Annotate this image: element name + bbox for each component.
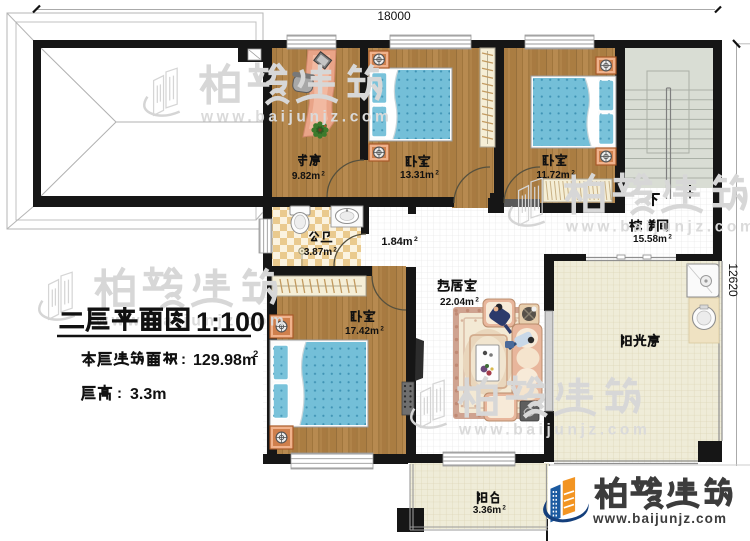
svg-text:2: 2: [253, 349, 258, 360]
svg-text:3.87m: 3.87m: [304, 247, 332, 258]
svg-text:2: 2: [380, 326, 384, 333]
svg-text:www.baijunjz.com: www.baijunjz.com: [458, 422, 650, 439]
svg-text:18000: 18000: [377, 9, 411, 23]
svg-text:www.baijunjz.com: www.baijunjz.com: [592, 511, 727, 526]
svg-text:22.04m: 22.04m: [440, 297, 474, 308]
svg-text::: :: [181, 351, 186, 368]
svg-text:2: 2: [502, 505, 506, 512]
svg-text:9.82m: 9.82m: [292, 171, 320, 182]
svg-text:3.3m: 3.3m: [130, 386, 166, 403]
svg-text:1.84m: 1.84m: [381, 236, 412, 248]
svg-text:2: 2: [435, 170, 439, 177]
svg-text:12620: 12620: [726, 263, 740, 297]
svg-text:11.72m: 11.72m: [536, 170, 569, 181]
svg-text:www.baijunjz.com: www.baijunjz.com: [200, 109, 392, 126]
svg-text:www.baijunjz.com: www.baijunjz.com: [565, 219, 750, 236]
svg-text:2: 2: [475, 297, 479, 304]
svg-text:2: 2: [414, 236, 418, 243]
svg-text:13.31m: 13.31m: [400, 170, 434, 181]
svg-text:17.42m: 17.42m: [345, 326, 379, 337]
svg-text:3.36m: 3.36m: [473, 505, 501, 516]
svg-text:2: 2: [321, 171, 325, 178]
svg-text:2: 2: [333, 247, 337, 254]
svg-text:15.58m: 15.58m: [633, 234, 667, 245]
svg-text:1:100: 1:100: [196, 307, 265, 337]
svg-text::: :: [117, 385, 122, 402]
svg-text:129.98m: 129.98m: [193, 352, 256, 369]
